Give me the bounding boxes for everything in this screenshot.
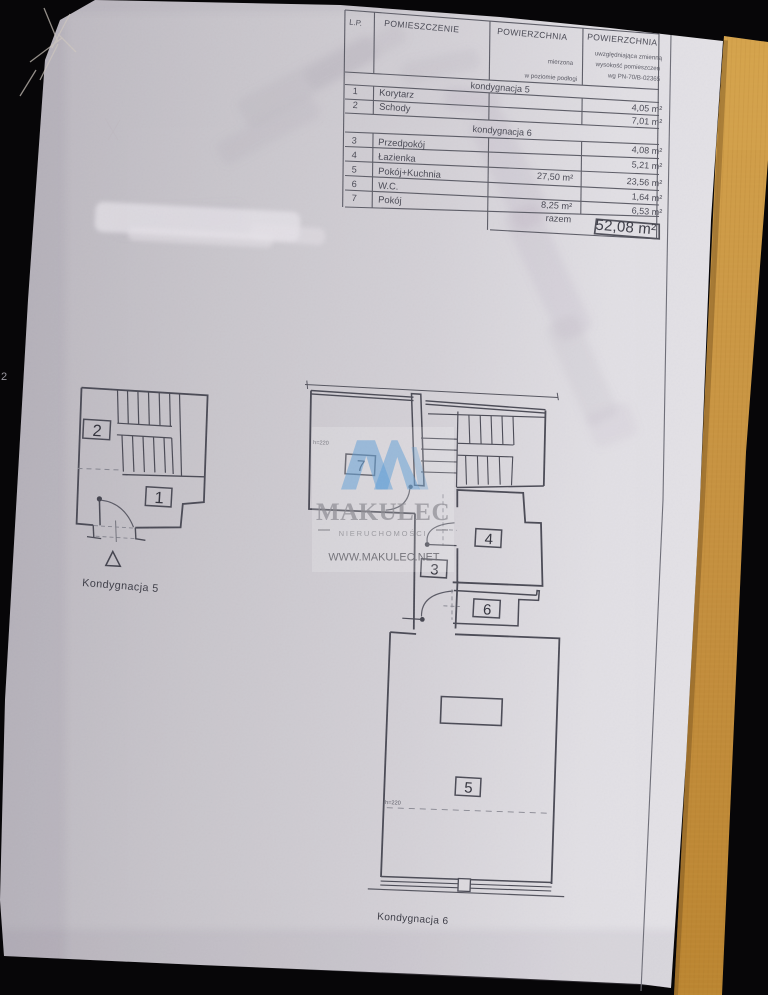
svg-text:2: 2 (1, 371, 7, 383)
